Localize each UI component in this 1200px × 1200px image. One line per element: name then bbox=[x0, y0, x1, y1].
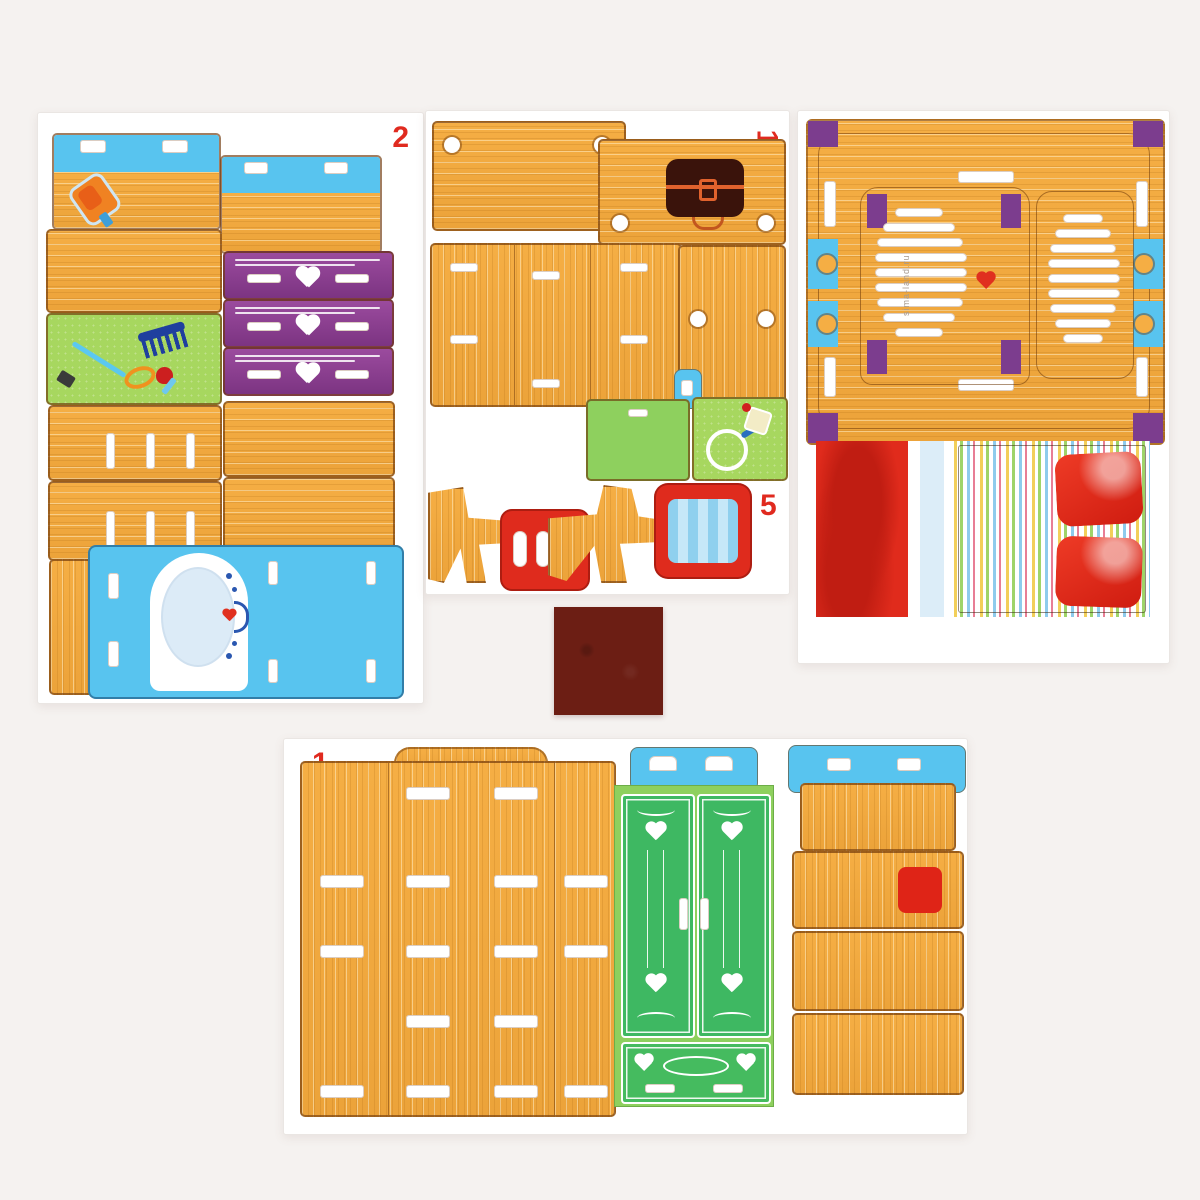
purple-drawer-front bbox=[223, 251, 394, 300]
vanity-back-panel bbox=[52, 133, 221, 230]
vanity-top-cosmetics-panel bbox=[46, 313, 222, 405]
plank-with-holes bbox=[432, 121, 626, 231]
brand-watermark: sima-land.ru bbox=[901, 254, 911, 316]
striped-cushion bbox=[668, 499, 738, 563]
wood-panel bbox=[800, 783, 956, 851]
blue-top-band bbox=[54, 135, 219, 172]
sheet-3-bed-parts: 3 bbox=[797, 110, 1170, 664]
heart-motif bbox=[644, 974, 668, 996]
hair-clip-icon bbox=[121, 362, 158, 393]
vanity-mirror-piece bbox=[88, 545, 404, 699]
scroll-ornament bbox=[637, 804, 675, 816]
purple-drawer-front bbox=[223, 299, 394, 348]
slot-cutout bbox=[335, 370, 369, 379]
tab-cutout bbox=[244, 162, 268, 174]
sheet-2-number: 2 bbox=[392, 123, 409, 153]
purple-tab bbox=[1001, 194, 1021, 228]
wood-panel bbox=[223, 401, 395, 477]
footboard-piece bbox=[1036, 191, 1134, 379]
sheet-middle-chair-parts: 1 4 5 bbox=[425, 110, 790, 595]
striped-mattress bbox=[954, 441, 1150, 617]
makeup-brush-icon bbox=[71, 341, 126, 378]
purple-corner bbox=[808, 413, 838, 443]
purple-tab bbox=[867, 340, 887, 374]
slot-cutout bbox=[335, 274, 369, 283]
wood-panel bbox=[46, 229, 222, 313]
brush-tip bbox=[56, 370, 76, 389]
chair-side-profile bbox=[548, 485, 664, 583]
crown-ornament bbox=[663, 1056, 729, 1076]
wardrobe-front bbox=[614, 785, 774, 1107]
panel-group bbox=[430, 243, 682, 407]
purple-corner bbox=[808, 121, 838, 147]
scroll-ornament bbox=[713, 1012, 751, 1024]
red-pillow bbox=[1055, 536, 1143, 609]
red-chair-seat bbox=[654, 483, 752, 579]
heart-motif bbox=[644, 822, 668, 844]
red-blanket bbox=[816, 441, 908, 617]
slot-cutout bbox=[335, 322, 369, 331]
red-heart bbox=[975, 272, 997, 292]
comb-icon bbox=[137, 321, 191, 361]
mirror-arch-cutout bbox=[150, 553, 248, 691]
vanity-side-panel bbox=[220, 155, 382, 254]
chest-handle bbox=[692, 217, 724, 230]
heart-motif bbox=[720, 974, 744, 996]
wardrobe-drawer bbox=[621, 1042, 771, 1104]
blue-edge-block bbox=[1133, 239, 1163, 289]
scroll-ornament bbox=[637, 1012, 675, 1024]
sheet-2-vanity-parts: 2 bbox=[37, 112, 424, 704]
purple-drawer-front bbox=[223, 347, 394, 396]
purple-corner bbox=[1133, 121, 1163, 147]
product-photo: 2 bbox=[0, 0, 1200, 1200]
tab-cutout bbox=[324, 162, 348, 174]
wardrobe-body-panel bbox=[300, 761, 616, 1117]
wood-panel bbox=[792, 1013, 964, 1095]
blue-edge-block bbox=[808, 239, 838, 289]
bottle-cap bbox=[742, 403, 751, 412]
heart-cutout bbox=[295, 315, 321, 339]
sheet-1-wardrobe-parts: 1 bbox=[283, 738, 968, 1135]
tab-cutout bbox=[162, 140, 188, 153]
wood-area bbox=[222, 193, 380, 252]
blue-edge-block bbox=[1133, 301, 1163, 347]
felt-square bbox=[554, 607, 663, 715]
heart-cutout bbox=[295, 363, 321, 387]
sheet-fold bbox=[908, 441, 954, 617]
heart-motif bbox=[633, 1054, 655, 1074]
red-heart bbox=[222, 609, 237, 623]
scroll-ornament bbox=[713, 804, 751, 816]
slot-cutout bbox=[247, 322, 281, 331]
wood-panel-with-red-patch bbox=[792, 851, 964, 929]
middle-sheet-number-5: 5 bbox=[760, 491, 777, 521]
heart-cutout bbox=[295, 267, 321, 291]
red-felt-patch bbox=[898, 867, 942, 913]
tab-cutout bbox=[80, 140, 106, 153]
blue-edge-block bbox=[808, 301, 838, 347]
heart-motif bbox=[720, 822, 744, 844]
red-pillow bbox=[1054, 451, 1144, 527]
headboard-piece: sima-land.ru bbox=[860, 187, 1030, 385]
slot-cutout bbox=[247, 274, 281, 283]
bed-top-print bbox=[816, 441, 1150, 617]
green-shelf-panel bbox=[586, 399, 690, 481]
bed-frame-block: sima-land.ru bbox=[806, 119, 1165, 445]
slot-cutout bbox=[247, 370, 281, 379]
purple-tab bbox=[1001, 340, 1021, 374]
green-panel-mirror-print bbox=[692, 397, 788, 481]
wood-panel bbox=[792, 931, 964, 1011]
slotted-wood-panel bbox=[48, 405, 222, 481]
plank-with-chest-print bbox=[598, 139, 786, 245]
treasure-chest-icon bbox=[666, 159, 744, 217]
heart-motif bbox=[735, 1054, 757, 1074]
purple-corner bbox=[1133, 413, 1163, 443]
